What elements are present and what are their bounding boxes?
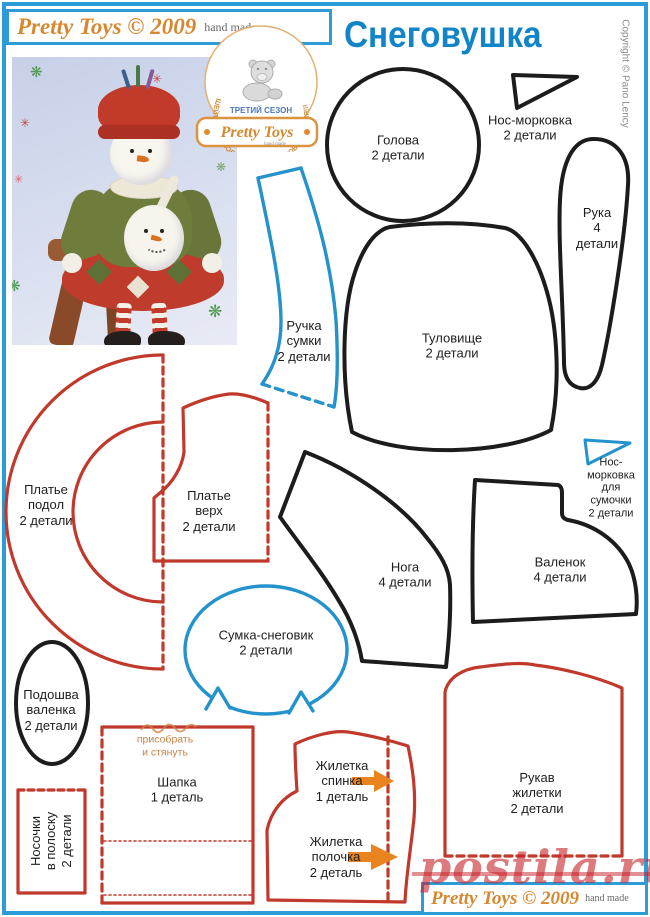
label-boot: Валенок 4 детали [533,555,586,586]
pattern-nose-outline [513,75,577,108]
pattern-sheet-page: Pretty Toys © 2009 hand made Снеговушка … [0,0,650,917]
pattern-bag-notch [206,688,230,709]
pattern-arm-outline [560,139,629,388]
label-dress-hem: Платье подол 2 детали [19,482,72,528]
label-bag-nose: Нос- морковка для сумочки 2 детали [587,456,635,519]
label-vest-back: Жилетка спинка 1 деталь [316,758,369,804]
pattern-sleeve-outline [445,664,622,856]
logo-sub-text: hand made [264,142,287,147]
pattern-bag-handle-right [301,168,337,407]
pattern-bag-handle-top [258,168,301,178]
logo-brand-text: Pretty Toys [220,124,294,141]
label-bag-handle: Ручка сумки 2 детали [277,318,330,364]
logo-banner: Pretty Toys hand made [197,118,317,147]
pretty-toys-logo: ШЕЙТЕ С УДОВОЛЬСТВИЕМ ДЛЯ УДОВОЛЬСТВИЯ!!… [195,18,321,152]
label-arm: Рука 4 детали [571,205,624,251]
label-dress-top: Платье верх 2 детали [182,488,235,534]
watermark-text: postila.ru [419,840,650,894]
label-socks: Носочки в полоску 2 детали [28,812,74,870]
logo-season-text: ТРЕТИЙ СЕЗОН [230,106,292,115]
label-bag: Сумка-снеговик 2 детали [219,628,314,659]
label-sleeve: Рукав жилетки 2 детали [510,770,563,816]
pattern-dress-hem-inner-arc [73,422,163,602]
pattern-bag-notch [289,692,313,713]
label-hat: Шапка 1 деталь [151,775,204,806]
pattern-dress-top-outline [154,394,268,561]
label-vest-front: Жилетка полочка 2 деталь [310,834,363,880]
label-leg: Нога 4 детали [378,560,431,591]
label-head: Голова 2 детали [371,133,424,164]
label-gather-note: присобрать и стянуть [137,733,193,758]
label-body: Туловище 2 детали [422,331,482,362]
label-sole: Подошва валенка 2 детали [23,687,79,733]
pattern-bag-handle-foldline [262,384,334,407]
footer-handmade: hand made [585,893,629,904]
label-nose: Нос-морковка 2 детали [488,113,572,144]
